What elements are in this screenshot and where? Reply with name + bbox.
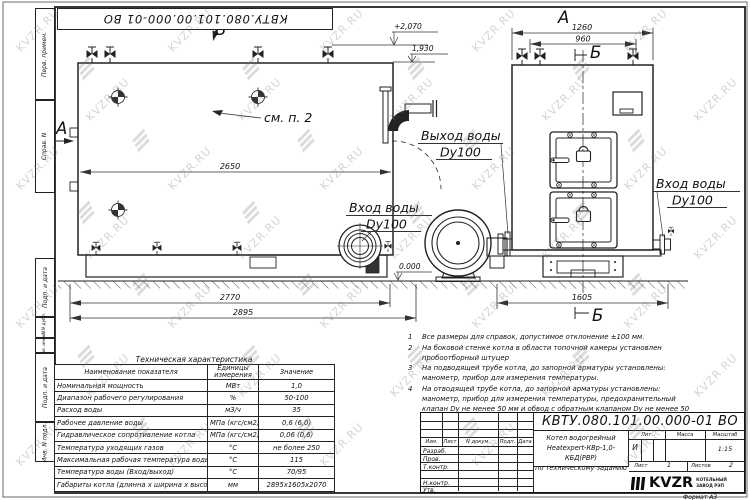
view-label-a: А (55, 119, 67, 138)
param-value: 70/95 (259, 466, 335, 478)
param-value: 0,06 (0,6) (259, 429, 335, 441)
dimension-1260: 1260 (572, 23, 592, 32)
tb-row-razrab: Разраб. (423, 448, 447, 455)
drawing-number-top: КВТУ.080.101.00.000-01 ВО (57, 8, 333, 30)
col-header-units: Единицы измерения (208, 365, 259, 380)
inlet-flange-front (653, 240, 660, 249)
margin-box: Подп. и дата (35, 258, 55, 317)
kvzr-logo-sub1: КОТЕЛЬНЫЙ (696, 478, 727, 483)
note-text: На подводящей трубе котла, до запорной а… (422, 364, 690, 384)
kvzr-logo-sub2: ЗАВОД РЭП (696, 484, 727, 489)
tech-characteristics: Техническая характеристика Наименование … (54, 355, 334, 492)
control-panel (613, 92, 642, 115)
scale-header: Масштаб (705, 432, 745, 438)
notes-list: 1Все размеры для справок, допустимое отк… (408, 333, 690, 424)
tb-row-tkontr: Т.контр. (423, 464, 449, 471)
outlet-label: Выход воды (421, 128, 501, 143)
tech-table-title: Техническая характеристика (54, 355, 334, 364)
note-number: 2 (408, 344, 422, 364)
note-number: 3 (408, 364, 422, 384)
margin-box: Взам. инв. N (35, 338, 55, 353)
col-header-value: Значение (259, 365, 335, 380)
lifting-lug-icon (249, 88, 268, 107)
param-value: 115 (259, 454, 335, 466)
tap-valve-icon (668, 227, 674, 236)
valve-icon (87, 47, 98, 63)
liter-value: И (629, 443, 641, 452)
tb-row-utv: Утв. (423, 487, 436, 494)
valve-icon (535, 49, 546, 65)
elevation-mid-label: 1,930 (412, 44, 434, 53)
margin-box: Справ. N (35, 100, 55, 193)
margin-label: Подп. и дата (42, 367, 49, 408)
table-row: Максимальная рабочая температура воды°С1… (55, 454, 335, 466)
see-note-label: см. п. 2 (264, 110, 312, 125)
view-marks (55, 20, 589, 319)
note-number: 1 (408, 333, 422, 343)
table-row: Температура воды (Вход/выход)°С70/95 (55, 466, 335, 478)
lower-access-door (550, 192, 617, 248)
param-value: 0,6 (6,0) (259, 417, 335, 429)
sheets-label: Листов (691, 463, 711, 469)
title-block-right: Лит. Масса Масштаб И 1:15 Лист 1 Листов … (629, 431, 745, 494)
table-row: Номинальная мощностьМВт1,0 (55, 380, 335, 392)
margin-label: Подп. и дата (42, 267, 49, 308)
margin-box: Перв. примен. (35, 8, 55, 100)
margin-box: Подп. и дата (35, 353, 55, 422)
revision-grid: Изм. Лист N докум. Подп. Дата Разраб. Пр… (421, 413, 534, 492)
param-name: Габариты котла (длинна х ширина х высота… (55, 479, 208, 491)
param-units: МПа (кгс/см2) (208, 429, 259, 441)
table-row: Температура уходящих газов°Сне более 250 (55, 441, 335, 453)
dimension-960: 960 (575, 35, 590, 44)
product-name-line1: Котел водогрейный (534, 434, 628, 444)
param-units: м3/ч (208, 404, 259, 416)
param-name: Расход воды (55, 404, 208, 416)
param-name: Гидравлическое сопротивление котла (55, 429, 208, 441)
param-units: мм (208, 479, 259, 491)
sheets-value: 2 (729, 462, 733, 469)
tb-col-data: Дата (517, 439, 533, 445)
margin-box: Инв. N подл. (35, 422, 55, 462)
valve-icon (253, 47, 264, 63)
dimension-2895: 2895 (233, 308, 253, 317)
sheet-value: 1 (667, 462, 671, 469)
dimension-2770: 2770 (220, 293, 240, 302)
kvzr-logo: KVZR КОТЕЛЬНЫЙ ЗАВОД РЭП (631, 473, 743, 493)
param-name: Температура уходящих газов (55, 441, 208, 453)
param-name: Рабочее давление воды (55, 417, 208, 429)
col-header-name: Наименование показателя (55, 365, 208, 380)
valve-icon (628, 49, 639, 65)
outlet-dn-label: Dy100 (440, 145, 481, 160)
drawing-sheet: 2650 2770 2895 1260 960 1605 А В А Б Б с… (0, 0, 750, 500)
scale-value: 1:15 (705, 445, 745, 453)
param-units: МПа (кгс/см2) (208, 417, 259, 429)
see-note-leader (212, 110, 261, 118)
table-row: Габариты котла (длинна х ширина х высота… (55, 479, 335, 491)
drain-valve-icon (233, 242, 242, 255)
param-value: 1,0 (259, 380, 335, 392)
format-label: Формат А3 (683, 494, 717, 500)
tb-col-list: Лист (442, 439, 458, 445)
param-name: Диапазон рабочего регулирования (55, 392, 208, 404)
section-label-b-top: Б (590, 43, 601, 62)
table-row: Гидравлическое сопротивление котлаМПа (к… (55, 429, 335, 441)
ground-line (58, 281, 688, 289)
tb-col-ndocum: N докум. (458, 439, 498, 445)
tb-col-izm: Изм. (421, 439, 442, 445)
section-label-b-bottom: Б (592, 306, 603, 325)
table-row: Диапазон рабочего регулирования%50-100 (55, 392, 335, 404)
inlet-front-dn-label: Dy100 (672, 193, 713, 208)
margin-label: Справ. N (42, 133, 49, 160)
title-block: Изм. Лист N докум. Подп. Дата Разраб. Пр… (420, 412, 745, 493)
note-item: 3На подводящей трубе котла, до запорной … (408, 364, 690, 384)
note-text: На боковой стенке котла в области топочн… (422, 344, 690, 364)
param-units: °С (208, 454, 259, 466)
param-value: не более 250 (259, 441, 335, 453)
param-units: % (208, 392, 259, 404)
upper-access-door (550, 132, 617, 188)
table-row: Расход водым3/ч35 (55, 404, 335, 416)
elevation-top-label: +2,070 (394, 22, 422, 31)
valve-icon (323, 47, 334, 63)
lifting-lug-icon (109, 88, 128, 107)
kvzr-logo-text: KVZR (649, 475, 693, 491)
tb-row-prov: Пров. (423, 456, 440, 463)
mass-header: Масса (665, 432, 705, 438)
inlet-side-label: Вход воды (349, 200, 419, 215)
param-name: Номинальная мощность (55, 380, 208, 392)
view-title-a: А (557, 8, 569, 27)
dimension-2650: 2650 (220, 162, 240, 171)
boiler-front-view (498, 49, 674, 298)
tb-col-podp: Подп. (498, 439, 517, 445)
note-item: 2На боковой стенке котла в области топоч… (408, 344, 690, 364)
liter-header: Лит. (629, 432, 665, 438)
note-item: 1Все размеры для справок, допустимое отк… (408, 333, 690, 343)
lifting-lug-icon (109, 201, 128, 220)
tech-table: Наименование показателя Единицы измерени… (54, 364, 335, 492)
inlet-front-label: Вход воды (656, 176, 726, 191)
inlet-side-dn-label: Dy100 (366, 217, 407, 232)
tech-table-body: Номинальная мощностьМВт1,0Диапазон рабоч… (55, 380, 335, 492)
kvzr-logo-icon (631, 477, 646, 490)
param-value: 35 (259, 404, 335, 416)
fan-blower (425, 210, 510, 282)
valve-icon (105, 47, 116, 63)
param-units: МВт (208, 380, 259, 392)
param-units: °С (208, 441, 259, 453)
tech-table-header: Наименование показателя Единицы измерени… (55, 365, 335, 380)
param-units: °С (208, 466, 259, 478)
elevation-zero-label: 0.000 (399, 262, 421, 271)
param-name: Максимальная рабочая температура воды (55, 454, 208, 466)
product-name-line2: Heatexpert-КВр-1,0-КБД(РВР) (534, 444, 628, 464)
sheet-label: Лист (634, 463, 647, 469)
table-row: Рабочее давление водыМПа (кгс/см2)0,6 (6… (55, 417, 335, 429)
note-text: Все размеры для справок, допустимое откл… (422, 333, 690, 343)
drawing-number: КВТУ.080.101.00.000-01 ВО (534, 413, 746, 431)
drain-valve-icon (153, 242, 162, 255)
drawing-number-top-text: КВТУ.080.101.00.000-01 ВО (103, 12, 288, 26)
param-name: Температура воды (Вход/выход) (55, 466, 208, 478)
margin-label: Инв. N подл. (42, 422, 49, 462)
tap-valve-icon (384, 242, 391, 252)
dimension-lines (70, 28, 668, 322)
dimension-1605: 1605 (572, 293, 592, 302)
valve-icon (517, 49, 528, 65)
drain-valve-icon (92, 242, 101, 255)
param-value: 2895х1605х2070 (259, 479, 335, 491)
margin-label: Перв. примен. (42, 31, 49, 76)
tb-row-nkontr: Н.контр. (423, 480, 450, 487)
param-value: 50-100 (259, 392, 335, 404)
product-name: Котел водогрейный Heatexpert-КВр-1,0-КБД… (534, 431, 629, 466)
